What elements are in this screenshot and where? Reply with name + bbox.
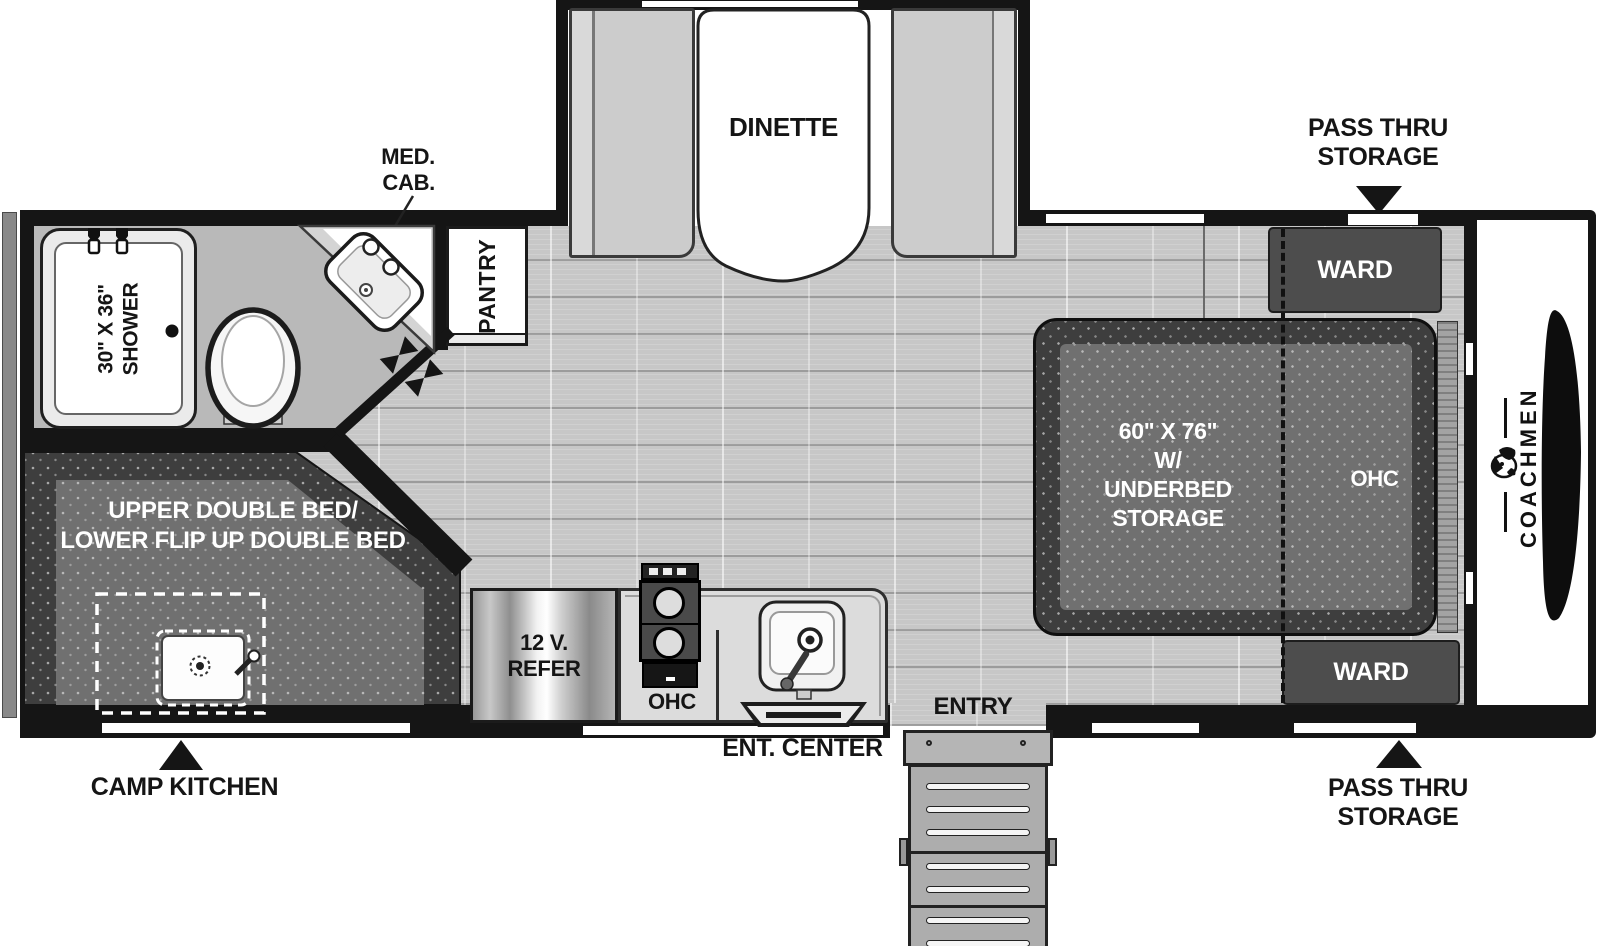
ent-center-label: ENT. CENTER [700,734,905,763]
corner-sink [300,226,434,352]
faucet-knob-icon [384,260,399,275]
dinette-table [698,10,869,281]
coachmen-wordmark: COACHMEN [1516,386,1541,548]
shower-size-text: 30" X 36" [93,282,118,375]
coachmen-logo: COACHMEN [1492,386,1541,548]
bed-w-text: W/ [1057,446,1279,475]
faucet-knob-icon [364,240,379,255]
kitchen-ohc-label: OHC [633,689,711,715]
front-cap-shape [1542,310,1581,620]
pass-thru-top-line2: STORAGE [1288,143,1468,172]
dog-mascot-icon [1492,447,1516,477]
bed-label: 60" X 76" W/ UNDERBED STORAGE [1057,417,1279,533]
bunk-line2: LOWER FLIP UP DOUBLE BED [28,526,438,556]
camp-kitchen-sink [157,631,260,705]
pass-thru-storage-top-label: PASS THRU STORAGE [1288,114,1468,172]
pass-thru-bottom-line1: PASS THRU [1305,774,1491,803]
pass-thru-bottom-line2: STORAGE [1305,803,1491,832]
floorplan-canvas: PANTRY 12 V. REFER WARD [0,0,1600,946]
bed-size-text: 60" X 76" [1057,417,1279,446]
shower-label: 30" X 36" SHOWER [40,228,197,429]
toilet [208,310,298,426]
kitchen-sink [760,602,844,699]
shower-text: SHOWER [118,282,143,375]
bunk-label: UPPER DOUBLE BED/ LOWER FLIP UP DOUBLE B… [28,496,438,556]
pass-thru-storage-bottom-label: PASS THRU STORAGE [1305,774,1491,832]
med-cab-line1: MED. [355,144,435,170]
faucet-icon [781,678,793,690]
med-cab-label: MED. CAB. [355,144,435,195]
bed-storage-text: STORAGE [1057,504,1279,533]
entry-label: ENTRY [913,693,1033,721]
tv-icon [740,702,867,727]
faucet-icon [249,651,260,662]
bunk-line1: UPPER DOUBLE BED/ [28,496,438,526]
bed-underbed-text: UNDERBED [1057,475,1279,504]
dinette-label: DINETTE [698,112,869,142]
pass-thru-top-line1: PASS THRU [1288,114,1468,143]
camp-kitchen-label: CAMP KITCHEN [82,773,287,802]
med-cab-line2: CAB. [355,170,435,196]
bed-ohc-label: OHC [1309,466,1440,492]
